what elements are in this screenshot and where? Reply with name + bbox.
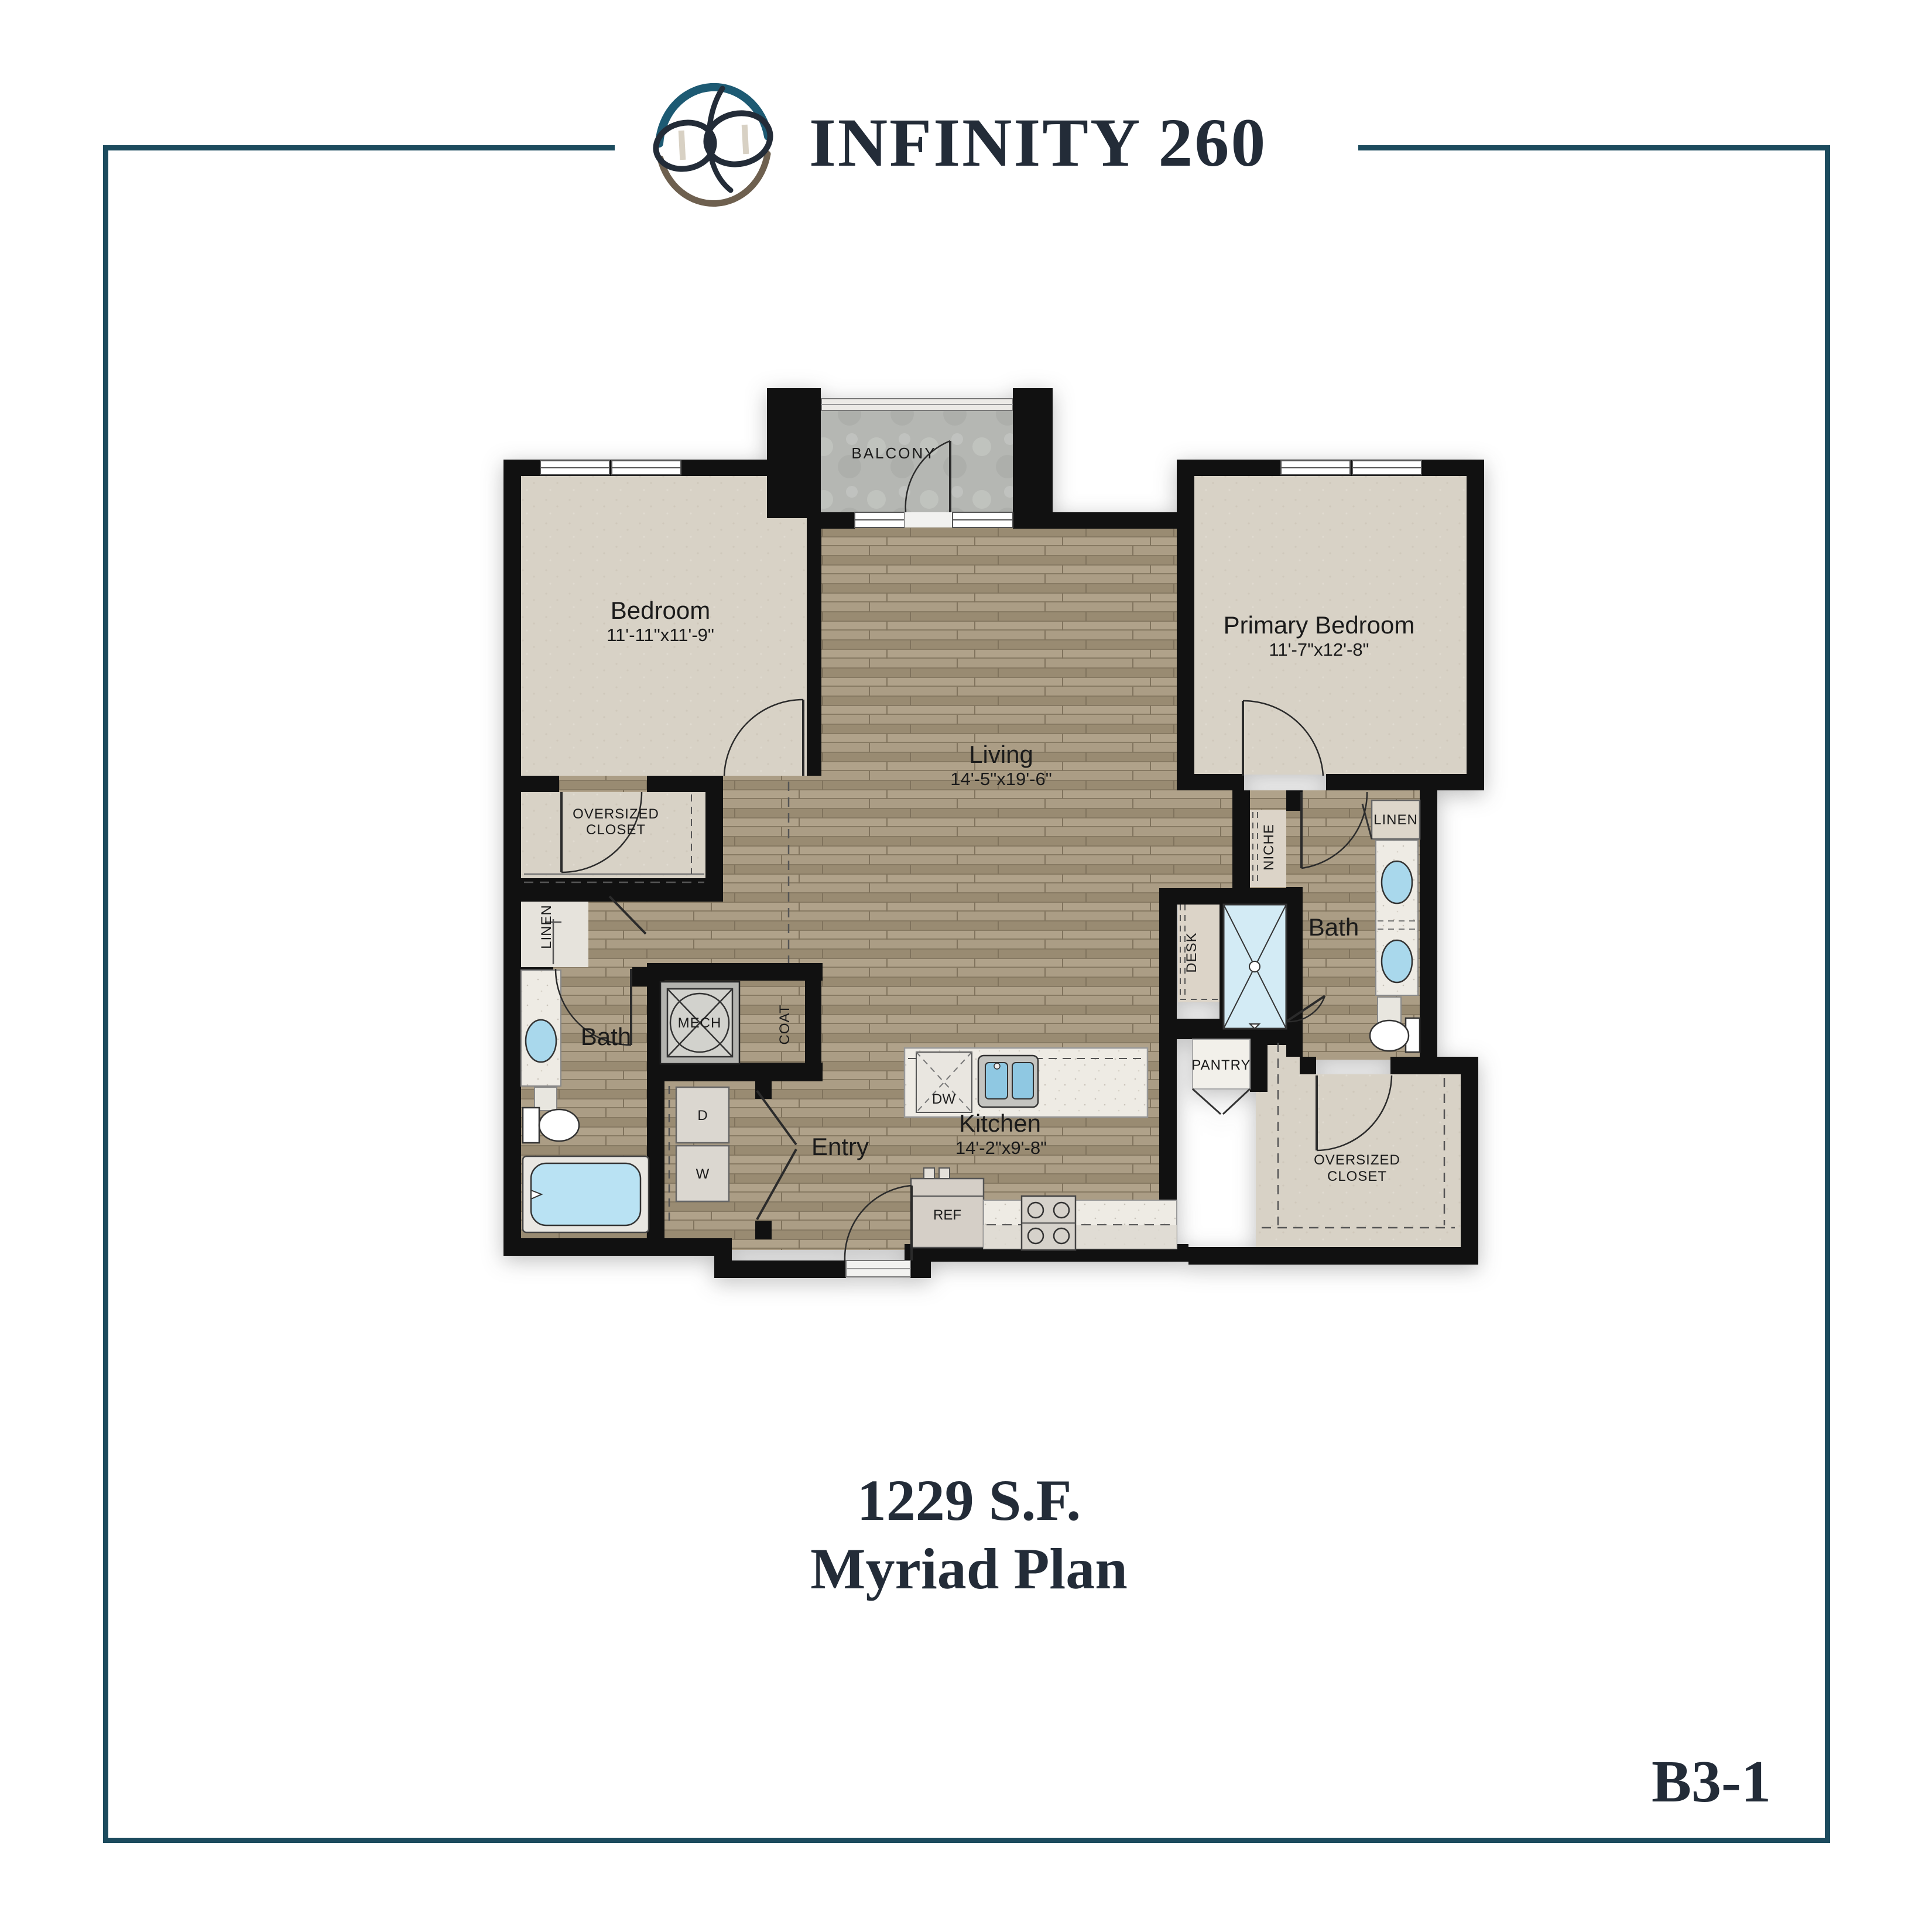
toilet-right [1370,1018,1420,1052]
primary-bedroom-dims: 11'-7"x12'-8" [1269,639,1369,660]
closet-left-line2: CLOSET [586,822,646,838]
bedroom-dims: 11'-11"x11'-9" [607,625,714,645]
balcony-floor [821,410,1013,514]
bedroom-window-1 [540,461,609,475]
vanity-right [1376,840,1418,1023]
shower [1224,905,1286,1029]
kitchen-dims: 14'-2"x9'-8" [955,1138,1047,1158]
sink-left [526,1020,556,1062]
bath-left-label: Bath [581,1023,631,1050]
kitchen-label: Kitchen [959,1109,1041,1137]
stove [1022,1196,1075,1250]
primary-window-2 [1352,461,1421,475]
pantry-label: PANTRY [1191,1057,1251,1073]
closet-right-line1: OVERSIZED [1314,1152,1400,1168]
fridge-label: REF [933,1207,961,1223]
border-right [1825,145,1830,1843]
plan-code-text: B3-1 [1464,1748,1771,1816]
border-left [103,145,108,1843]
primary-window-1 [1281,461,1350,475]
balcony-door-sill [905,512,953,527]
border-bottom [103,1838,1830,1843]
kitchen-counter [984,1200,1177,1249]
bedroom-label: Bedroom [611,597,710,624]
plan-name-text: Myriad Plan [676,1535,1262,1602]
toilet-left [523,1108,579,1143]
sink-right-1 [1382,861,1412,903]
living-dims: 14'-5"x19'-6" [950,769,1051,789]
living-label: Living [969,741,1033,768]
logo-tick-left [679,131,686,160]
closet-right-line2: CLOSET [1327,1169,1387,1184]
infinity-logo [643,73,783,211]
balcony-label: BALCONY [851,444,936,462]
sink-right-2 [1382,940,1412,982]
dishwasher-label: DW [932,1091,955,1107]
page-title: INFINITY 260 [809,103,1267,183]
linen-left-label: LINEN [539,905,554,949]
desk-label: DESK [1184,932,1200,972]
floor-plan: BALCONY Bedroom 11'-11"x11'-9" Primary B… [495,378,1502,1279]
entry-door-sill [846,1260,910,1277]
primary-bedroom-label: Primary Bedroom [1224,611,1415,639]
bedroom-window-2 [612,461,681,475]
closet-left-line1: OVERSIZED [573,806,659,822]
floorplan-sheet: INFINITY 260 [0,0,1932,1932]
entry-label: Entry [811,1133,869,1160]
coat-label: COAT [777,1005,793,1045]
balcony-window [855,512,905,527]
kitchen-sink [978,1056,1038,1107]
area-text: 1229 S.F. [676,1467,1262,1534]
bathtub [523,1156,649,1232]
balcony-window-2 [953,512,1013,527]
border-top-right [1358,145,1830,150]
dryer-label: D [697,1108,707,1123]
linen-left-floor [521,902,588,967]
logo-tick-right [742,125,749,154]
border-top-left [103,145,615,150]
mech-label: MECH [678,1015,722,1031]
bath-right-label: Bath [1308,913,1359,941]
niche-label: NICHE [1261,824,1277,871]
washer-label: W [696,1166,710,1182]
pantry-box [1193,1039,1250,1114]
linen-right-label: LINEN [1373,812,1418,828]
